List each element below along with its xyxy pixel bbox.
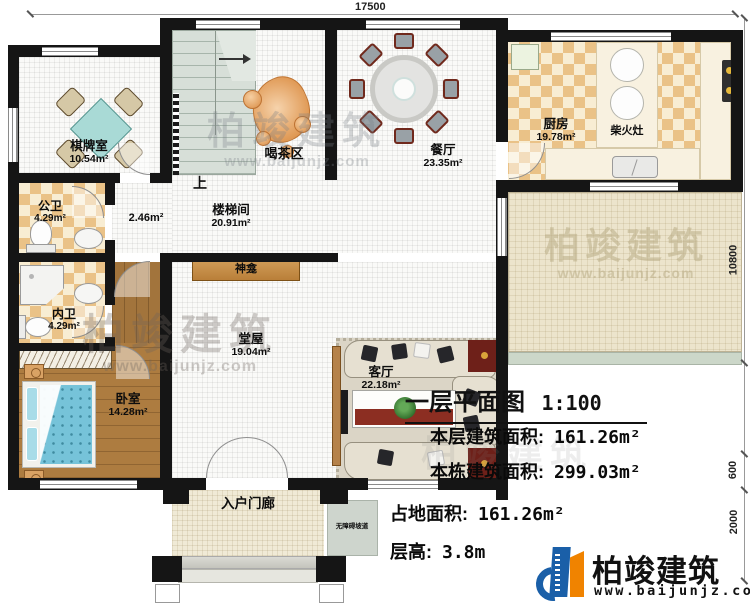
bed-pillow-2	[26, 427, 38, 461]
wall	[105, 183, 115, 205]
dim-right-label: 10800	[727, 245, 739, 276]
stairs-up-text: 上	[193, 175, 207, 191]
sofa-cushion-3	[413, 342, 431, 359]
porch-column-base-right	[319, 584, 344, 603]
window	[42, 47, 98, 56]
porch-column-base-left	[155, 584, 180, 603]
info-label: 占地面积:	[390, 504, 468, 524]
stair-arrow-head	[243, 54, 251, 64]
terrace-floor	[508, 192, 742, 352]
wood-stove-burner-1	[610, 48, 644, 82]
plan-title-block: 一层平面图 1:100	[405, 382, 647, 424]
wall	[731, 30, 743, 192]
info-value: 161.26m²	[478, 504, 565, 525]
wall	[325, 18, 337, 180]
fridge	[511, 44, 539, 70]
tea-pouf-3	[256, 131, 271, 146]
room-label-public-bath: 公卫 4.29m²	[34, 200, 66, 224]
nightstand-lamp	[31, 368, 41, 378]
dim-line-right	[744, 18, 745, 582]
mat-medallion-1	[481, 352, 488, 359]
wall	[8, 343, 112, 351]
info-label: 层高:	[390, 542, 432, 562]
tea-pouf-1	[243, 90, 262, 109]
room-name: 喝茶区	[264, 146, 303, 161]
info-value: 299.03m²	[554, 462, 641, 483]
room-area: 23.35m²	[423, 158, 462, 170]
room-label-stair-hall: 楼梯间 20.91m²	[211, 204, 250, 229]
room-area: 19.78m²	[536, 132, 575, 144]
brand-logo: 柏竣建筑 www.baijunjz.com	[538, 545, 748, 607]
wall	[8, 253, 107, 262]
porch-step-1	[178, 556, 318, 569]
wall	[160, 253, 338, 262]
room-area: 14.28m²	[108, 407, 147, 419]
porch-corner-block-left	[163, 478, 189, 504]
wall	[150, 173, 168, 183]
kitchen-sink	[612, 156, 658, 178]
room-name: 公卫	[38, 199, 62, 213]
room-area: 10.54m²	[69, 154, 108, 166]
room-label-bedroom: 卧室 14.28m²	[108, 393, 147, 418]
info-land-area: 占地面积:161.26m²	[390, 500, 565, 526]
window	[368, 480, 438, 489]
nightstand-1	[24, 364, 44, 379]
room-label-tea: 喝茶区	[264, 147, 303, 161]
window	[551, 32, 671, 41]
info-floor-height: 层高:3.8m	[390, 538, 485, 564]
porch-corner-block-right	[320, 478, 348, 504]
room-name: 卧室	[115, 392, 140, 406]
info-label: 本栋建筑面积:	[430, 462, 544, 482]
tea-pouf-2	[294, 116, 311, 133]
info-value: 161.26m²	[554, 427, 641, 448]
info-floor-area: 本层建筑面积:161.26m²	[430, 423, 641, 449]
brand-logo-icon	[538, 545, 586, 605]
plan-scale: 1:100	[541, 391, 601, 415]
room-label-living: 客厅 22.18m²	[361, 366, 400, 391]
room-name: 柴火灶	[611, 125, 644, 137]
window	[366, 20, 460, 29]
room-label-chess: 棋牌室 10.54m²	[69, 140, 108, 165]
plan-title: 一层平面图	[405, 389, 525, 416]
label-ramp: 无障碍坡道	[336, 523, 369, 530]
brand-url: www.baijunjz.com	[594, 583, 750, 599]
dim-line-top	[30, 14, 736, 15]
kitchen-sink-divider	[631, 159, 637, 175]
room-name: 棋牌室	[70, 139, 108, 153]
dim-right-mid-label: 600	[727, 461, 739, 479]
stair-rail	[173, 93, 179, 175]
porch-column-right	[316, 556, 346, 582]
wall	[8, 173, 120, 183]
room-area: 2.46m²	[129, 212, 164, 224]
label-stairs-up: 上	[193, 176, 207, 191]
dining-chair-n	[394, 33, 414, 49]
public-sink	[74, 228, 103, 249]
window	[40, 480, 137, 489]
dim-top-label: 17500	[355, 1, 386, 13]
room-name: 入户门廊	[221, 496, 275, 511]
room-area: 19.04m²	[231, 347, 270, 359]
stair-arrow-line	[219, 58, 245, 60]
shower-drain	[29, 274, 34, 279]
room-area: 4.29m²	[34, 213, 66, 224]
room-name: 神龛	[235, 263, 257, 275]
room-label-dining: 餐厅 23.35m²	[423, 144, 462, 169]
wall	[160, 253, 172, 478]
label-shrine: 神龛	[235, 263, 257, 275]
tv-cabinet	[332, 346, 341, 466]
dining-chair-s	[394, 128, 414, 144]
public-toilet-tank	[26, 244, 56, 253]
porch-column-left	[152, 556, 182, 582]
room-label-kitchen: 厨房 19.78m²	[536, 118, 575, 143]
wall	[160, 18, 172, 183]
room-name: 楼梯间	[212, 203, 250, 217]
private-sink	[74, 283, 103, 304]
room-name: 无障碍坡道	[336, 523, 369, 530]
stair-divider	[215, 31, 216, 135]
label-wood-stove: 柴火灶	[611, 125, 644, 137]
label-hallway-area: 2.46m²	[129, 212, 164, 224]
sofa-cushion-1	[361, 345, 379, 363]
floor-plan-canvas: 柏竣建筑 www.baijunjz.com 柏竣建筑 www.baijunjz.…	[0, 0, 750, 611]
room-name: 厨房	[543, 117, 568, 131]
room-area: 4.29m²	[48, 321, 80, 332]
room-label-main-hall: 堂屋 19.04m²	[231, 333, 270, 358]
room-name: 客厅	[368, 365, 393, 379]
sofa-cushion-2	[391, 343, 408, 360]
room-name: 内卫	[52, 307, 76, 321]
dining-table-center	[392, 77, 416, 101]
info-label: 本层建筑面积:	[430, 427, 544, 447]
room-name: 堂屋	[238, 332, 263, 346]
info-value: 3.8m	[442, 542, 485, 563]
window	[590, 182, 678, 191]
porch-step-2	[178, 569, 318, 583]
porch-door-gap	[206, 478, 288, 490]
dim-right-bottom-label: 2000	[728, 510, 740, 534]
dining-chair-e	[443, 79, 459, 99]
room-name: 餐厅	[430, 143, 455, 157]
bed-pillow-1	[26, 387, 38, 421]
terrace-edge-band	[508, 352, 742, 365]
info-building-area: 本栋建筑面积:299.03m²	[430, 458, 641, 484]
tv	[341, 390, 348, 434]
sofa-cushion-7	[377, 449, 394, 466]
logo-tower-orange	[570, 551, 584, 597]
private-toilet-bowl	[25, 317, 51, 337]
room-label-private-bath: 内卫 4.29m²	[48, 308, 80, 332]
logo-tower-dots	[555, 553, 560, 591]
window	[8, 108, 18, 162]
window	[196, 20, 260, 29]
room-label-porch: 入户门廊	[221, 497, 275, 512]
window	[497, 198, 507, 256]
room-area: 20.91m²	[211, 218, 250, 230]
logo-tower-blue	[549, 547, 570, 597]
wood-stove-burner-2	[610, 86, 644, 120]
bed-sheet-fold	[40, 385, 70, 464]
room-area: 22.18m²	[361, 380, 400, 392]
dining-chair-w	[349, 79, 365, 99]
